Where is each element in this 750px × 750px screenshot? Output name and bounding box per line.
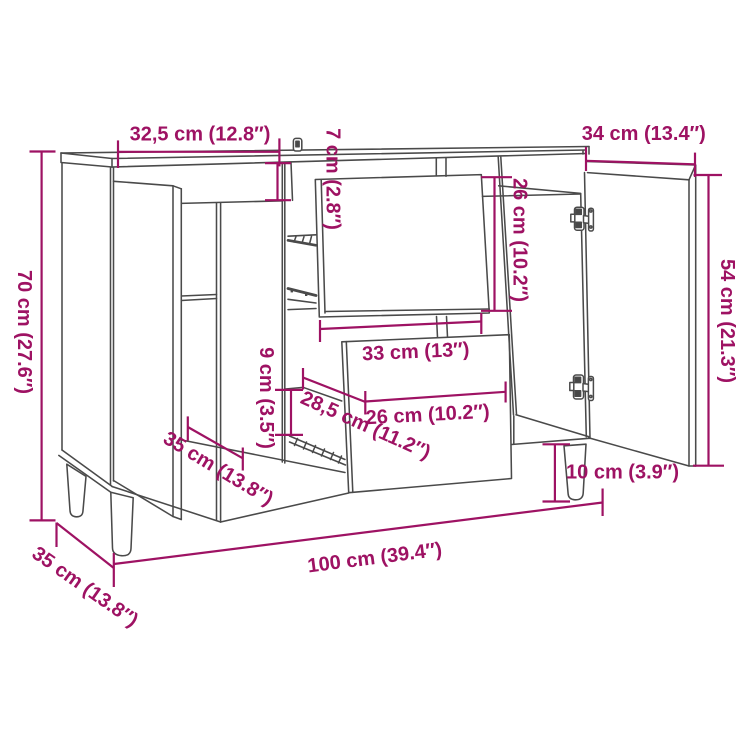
svg-text:34 cm (13.4″): 34 cm (13.4″): [582, 123, 706, 145]
svg-text:33 cm (13″): 33 cm (13″): [362, 339, 470, 366]
svg-text:26 cm (10.2″): 26 cm (10.2″): [508, 178, 530, 302]
svg-text:10 cm (3.9″): 10 cm (3.9″): [566, 462, 679, 484]
svg-text:54 cm (21.3″): 54 cm (21.3″): [716, 259, 738, 383]
svg-text:32,5 cm (12.8″): 32,5 cm (12.8″): [130, 124, 271, 146]
svg-text:9 cm (3.5″): 9 cm (3.5″): [255, 347, 277, 449]
svg-text:70 cm (27.6″): 70 cm (27.6″): [13, 270, 35, 394]
svg-text:7 cm (2.8″): 7 cm (2.8″): [321, 128, 343, 230]
